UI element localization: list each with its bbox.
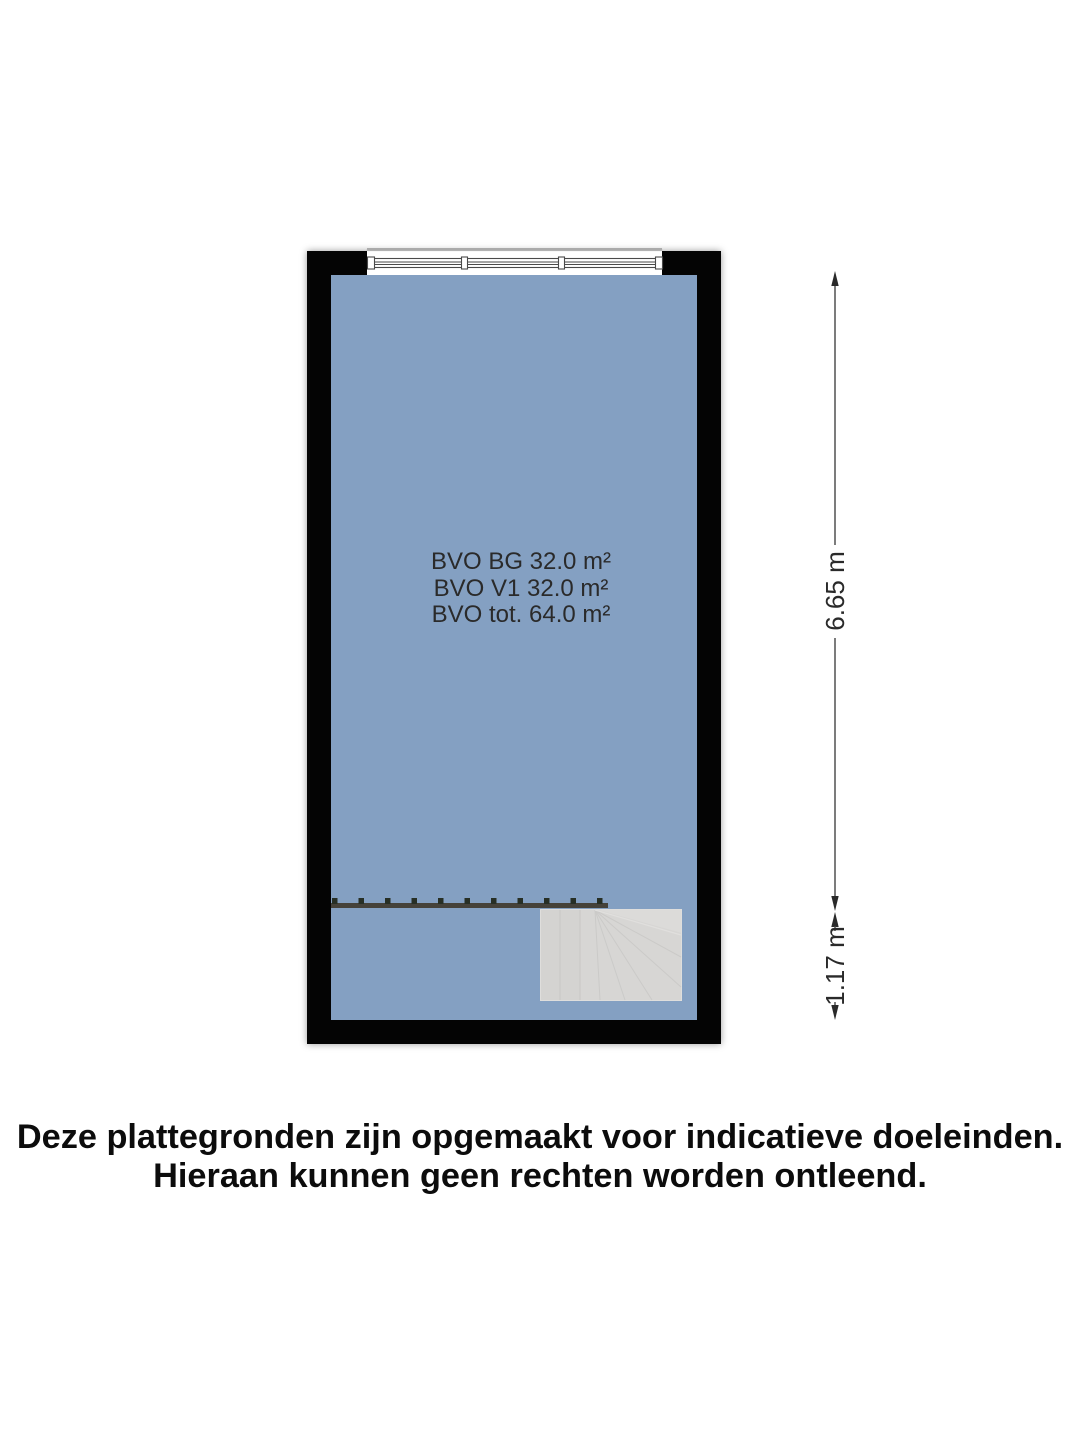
svg-text:1.17 m: 1.17 m [820,926,850,1006]
svg-text:6.65 m: 6.65 m [820,551,850,631]
